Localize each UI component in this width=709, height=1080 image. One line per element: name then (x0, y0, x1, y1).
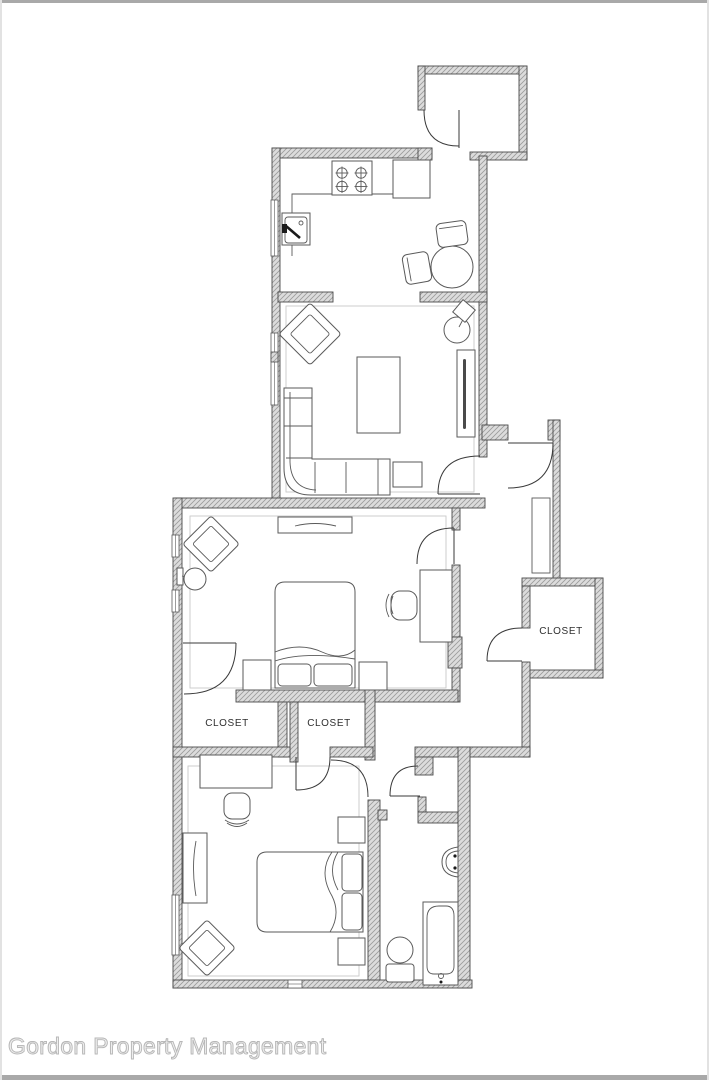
bedroom-door (417, 528, 454, 564)
closet2-left-wall (290, 702, 298, 762)
entry-door (424, 110, 459, 148)
closet-room-left-wall-lower (522, 662, 530, 757)
bath-inner-wall (418, 812, 458, 823)
kitchen-living-divider-left (278, 292, 333, 302)
armoire-mirror-icon (183, 833, 207, 903)
bath-top-wall (415, 747, 530, 757)
bedroom-right-wall-mid (452, 565, 460, 637)
closet1-door (183, 643, 236, 694)
hallway-door (508, 443, 553, 488)
coffee-table-icon (357, 357, 400, 433)
refrigerator-icon (393, 160, 430, 198)
closet-label-middle: CLOSET (307, 718, 351, 729)
entry-left-wall (418, 66, 425, 110)
closet2-bottom-wall (330, 747, 373, 757)
entry-top-wall (418, 66, 527, 74)
bath-door-stub-left (378, 810, 387, 820)
dining-chair (435, 220, 468, 248)
bathroom-sink-icon (442, 847, 458, 877)
bedroom (177, 516, 452, 690)
closet-label-hall: CLOSET (539, 626, 583, 637)
armchair-icon (179, 920, 236, 977)
hall-closet-room (532, 498, 550, 573)
dresser-icon (420, 570, 452, 642)
second-bedroom-right-wall (368, 800, 380, 988)
armchair-icon (183, 516, 240, 573)
living-room (279, 300, 475, 495)
bath-inner-wall-cap (418, 797, 426, 812)
bedroom-window-lower (172, 590, 179, 612)
closet2-door (296, 757, 330, 790)
stove-icon (332, 161, 372, 195)
dresser-icon (200, 755, 272, 788)
toilet-icon (386, 937, 414, 982)
kitchen-top-wall (272, 148, 432, 158)
hall-shelf-icon (532, 498, 550, 573)
dining-table-icon (431, 246, 473, 288)
tv-console-icon (457, 350, 475, 437)
pillow (314, 664, 352, 686)
closet-room-right-wall (595, 578, 603, 678)
bed-icon (257, 852, 363, 932)
pillow (278, 664, 311, 686)
entry-right-wall (519, 66, 527, 160)
side-table-icon (393, 462, 422, 487)
closet-room-door (487, 628, 522, 661)
page-bottom-edge (0, 1075, 709, 1080)
bathtub-icon (423, 902, 458, 985)
nightstand-icon (359, 662, 387, 690)
bedroom-window-upper (172, 535, 179, 557)
kitchen-window (271, 200, 278, 256)
hall-top-wall (482, 425, 508, 440)
floor-plan-page: CLOSET CLOSET CLOSET Gordon Property Man… (0, 0, 709, 1080)
second-bedroom (179, 755, 365, 976)
second-bedroom-bottom-window (288, 980, 302, 988)
nightstand-icon (338, 938, 365, 965)
living-room-window (271, 333, 278, 405)
hall-right-wall (553, 420, 560, 583)
right-wall-kitchen-living (479, 156, 487, 457)
kitchen-sink-icon (282, 213, 310, 245)
kitchen (282, 160, 473, 288)
kitchen-living-divider-right (420, 292, 487, 302)
page-top-edge (0, 0, 709, 3)
window-mullion (271, 352, 278, 362)
pillow (342, 854, 362, 891)
dining-chair (402, 251, 433, 285)
bathroom (386, 847, 458, 985)
bed-icon (275, 582, 355, 688)
nightstand-icon (243, 660, 271, 690)
bedroom-right-wall-upper (452, 508, 460, 530)
closet-room-bottom-wall (522, 670, 603, 678)
entry-bottom-wall (470, 152, 527, 160)
nightstand-icon (338, 817, 365, 843)
second-bedroom-door (331, 760, 368, 797)
page-left-edge (0, 0, 2, 1080)
closet-label-left: CLOSET (205, 718, 249, 729)
low-dresser-icon (278, 517, 352, 533)
armchair-icon (279, 303, 341, 365)
right-outer-wall (458, 747, 470, 988)
living-bedroom-wall (175, 498, 485, 508)
kitchen-top-wall-cap (418, 148, 432, 160)
closet-room-top-wall (522, 578, 603, 586)
watermark-text: Gordon Property Management (8, 1033, 326, 1060)
desk-chair-icon (224, 793, 250, 827)
second-bedroom-window (172, 895, 179, 955)
walls (173, 66, 603, 988)
pillow (342, 893, 362, 930)
bedroom-bottom-wall (236, 690, 458, 702)
closet-room-left-wall-upper (522, 586, 530, 628)
desk-chair-icon (386, 591, 417, 620)
floor-plan-drawing: CLOSET CLOSET CLOSET (0, 0, 709, 1080)
